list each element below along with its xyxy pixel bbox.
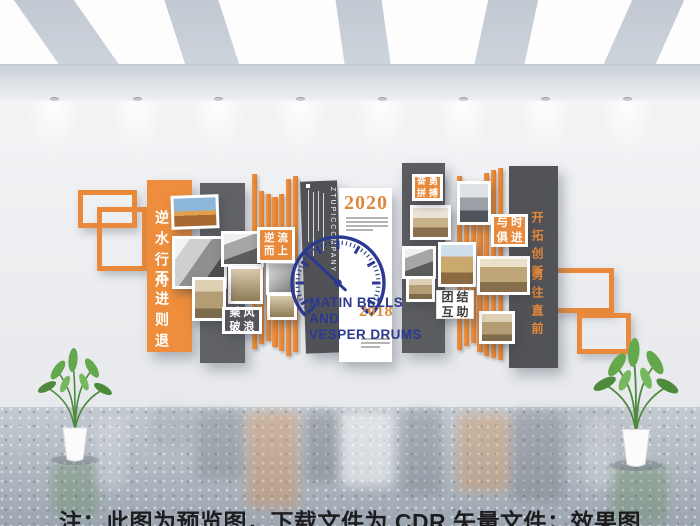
clock-tick — [374, 270, 378, 271]
photo-sepia-small — [406, 276, 435, 302]
micro-text-line — [361, 342, 390, 344]
badge-unity-line2: 互助 — [441, 305, 471, 320]
badge-unity-line1: 团结 — [441, 290, 471, 305]
caption: 注：此图为预览图，下载文件为 CDR 矢量文件；效果图 — [59, 503, 641, 526]
clock-title-line1: MATIN BELLS — [309, 295, 403, 310]
clock-tick — [301, 262, 308, 266]
badge-ride-wind-line1: 乘风 — [230, 307, 258, 321]
clock-title-line2: AND — [309, 311, 339, 326]
downlight-glow — [191, 101, 245, 159]
floor-reflection — [305, 412, 339, 482]
micro-text-line — [346, 225, 388, 227]
panel-corner-mark — [306, 184, 310, 188]
ceiling-beam — [163, 0, 240, 65]
clock-tick — [325, 243, 326, 247]
floor-reflection — [458, 414, 510, 492]
floor-reflection — [402, 410, 442, 496]
ceiling-light-panels — [0, 0, 700, 65]
photo-bw-pair — [402, 246, 436, 279]
clock-tick — [369, 258, 372, 260]
clock-tick — [375, 291, 379, 292]
plant-right — [572, 320, 700, 472]
photo-bw-cathedral — [457, 181, 491, 225]
micro-text-column — [318, 191, 319, 231]
badge-strive-line2: 拼搏 — [417, 188, 441, 199]
micro-text-line — [346, 217, 388, 219]
clock-tick — [296, 274, 300, 275]
ceiling-beam — [11, 0, 121, 65]
floor-reflection — [341, 412, 393, 486]
clock-tick — [299, 266, 303, 268]
clock-tick — [304, 306, 307, 308]
clock-tick — [373, 266, 377, 268]
clock-tick — [304, 258, 307, 260]
clock-center — [334, 279, 342, 287]
badge-with-times-line2: 俱进 — [497, 231, 526, 245]
clock-tick — [346, 241, 347, 245]
ceiling-beam — [335, 0, 391, 65]
clock-tick — [299, 299, 303, 301]
plant-pot — [623, 430, 650, 467]
ceiling-beam — [474, 0, 539, 65]
clock-tick — [317, 246, 321, 253]
downlight-glow — [110, 101, 164, 159]
floor-reflection — [512, 410, 564, 502]
clock-tick — [321, 244, 323, 248]
clock-tick — [298, 295, 302, 296]
plant-left — [18, 330, 132, 466]
year-2020: 2020 — [344, 192, 388, 215]
clock-tick — [354, 244, 356, 248]
badge-upstream-line2: 而上 — [264, 245, 291, 258]
photo-ruins — [477, 256, 530, 295]
badge-unity: 团结 互助 — [436, 290, 474, 319]
ceiling-cornice — [0, 65, 700, 100]
clock-tick — [296, 291, 300, 292]
micro-text-line — [346, 229, 373, 231]
clock-tick — [298, 270, 302, 271]
clock-tick — [350, 243, 351, 247]
plant-pot — [63, 428, 87, 461]
badge-with-times-line1: 与时 — [497, 216, 526, 230]
photo-sepia-column — [228, 266, 263, 304]
floor-reflection — [150, 408, 196, 448]
clock-tick — [329, 241, 330, 245]
badge-ride-wind-line2: 破浪 — [230, 321, 258, 335]
downlight-glow — [436, 101, 490, 159]
floor-reflection — [196, 410, 244, 480]
photo-tower-painting — [438, 242, 476, 287]
photo-sepia-statue — [192, 277, 226, 321]
decor-frame — [97, 207, 147, 271]
right-slogan-phrase-2: 勇往直前 — [529, 268, 546, 340]
badge-upstream-line1: 逆流 — [264, 232, 291, 245]
clock-tick — [361, 249, 363, 252]
badge-strive-line1: 奋勇 — [417, 176, 441, 187]
photo-roof-sky — [170, 194, 219, 230]
room-scene: 逆水行舟 不进则退 开拓创新 勇往直前 ZTUPICCOMPANY 逆流 而上 … — [0, 0, 700, 526]
clock-tick — [313, 249, 315, 252]
badge-strive: 奋勇 拼搏 — [412, 174, 443, 201]
decor-frame — [553, 268, 614, 313]
badge-with-times: 与时 俱进 — [491, 214, 528, 247]
downlight-glow — [27, 101, 81, 159]
downlight-glow — [518, 101, 572, 159]
photo-church — [410, 205, 451, 240]
clock-tick — [364, 251, 367, 254]
downlight-glow — [273, 101, 327, 159]
downlight-glow — [600, 101, 654, 159]
floor-reflection — [247, 412, 299, 508]
clock-tick — [355, 246, 359, 253]
micro-text-line — [346, 221, 388, 223]
left-slogan-phrase-2: 不进则退 — [150, 270, 170, 354]
clock-tick — [301, 300, 308, 304]
clock-title-line3: VESPER DRUMS — [309, 327, 422, 342]
ceiling-beam — [602, 0, 686, 65]
clock-tick — [375, 274, 379, 275]
micro-text-line — [361, 346, 380, 348]
badge-ride-wind: 乘风 破浪 — [222, 307, 262, 334]
clock-hand — [307, 254, 338, 283]
clock-tick — [367, 262, 374, 266]
downlight-glow — [355, 101, 409, 159]
photo-gate-small — [479, 311, 515, 344]
clock-tick — [310, 251, 313, 254]
clock-tick — [366, 255, 369, 258]
